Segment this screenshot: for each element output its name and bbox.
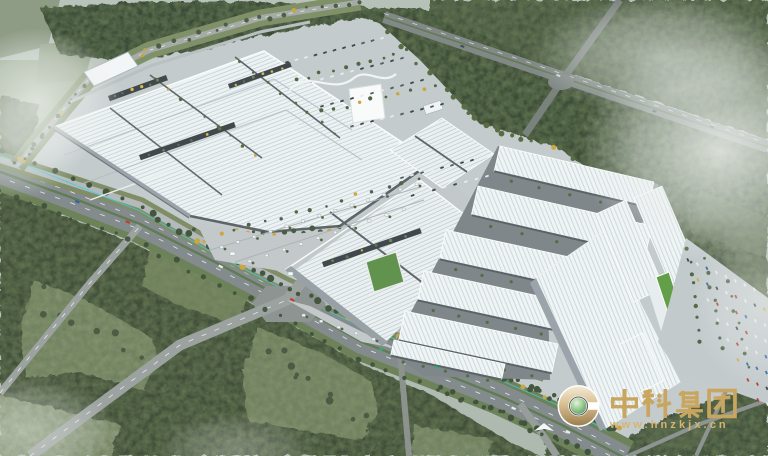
svg-text:www.hnzkjx.cn: www.hnzkjx.cn (609, 419, 729, 431)
